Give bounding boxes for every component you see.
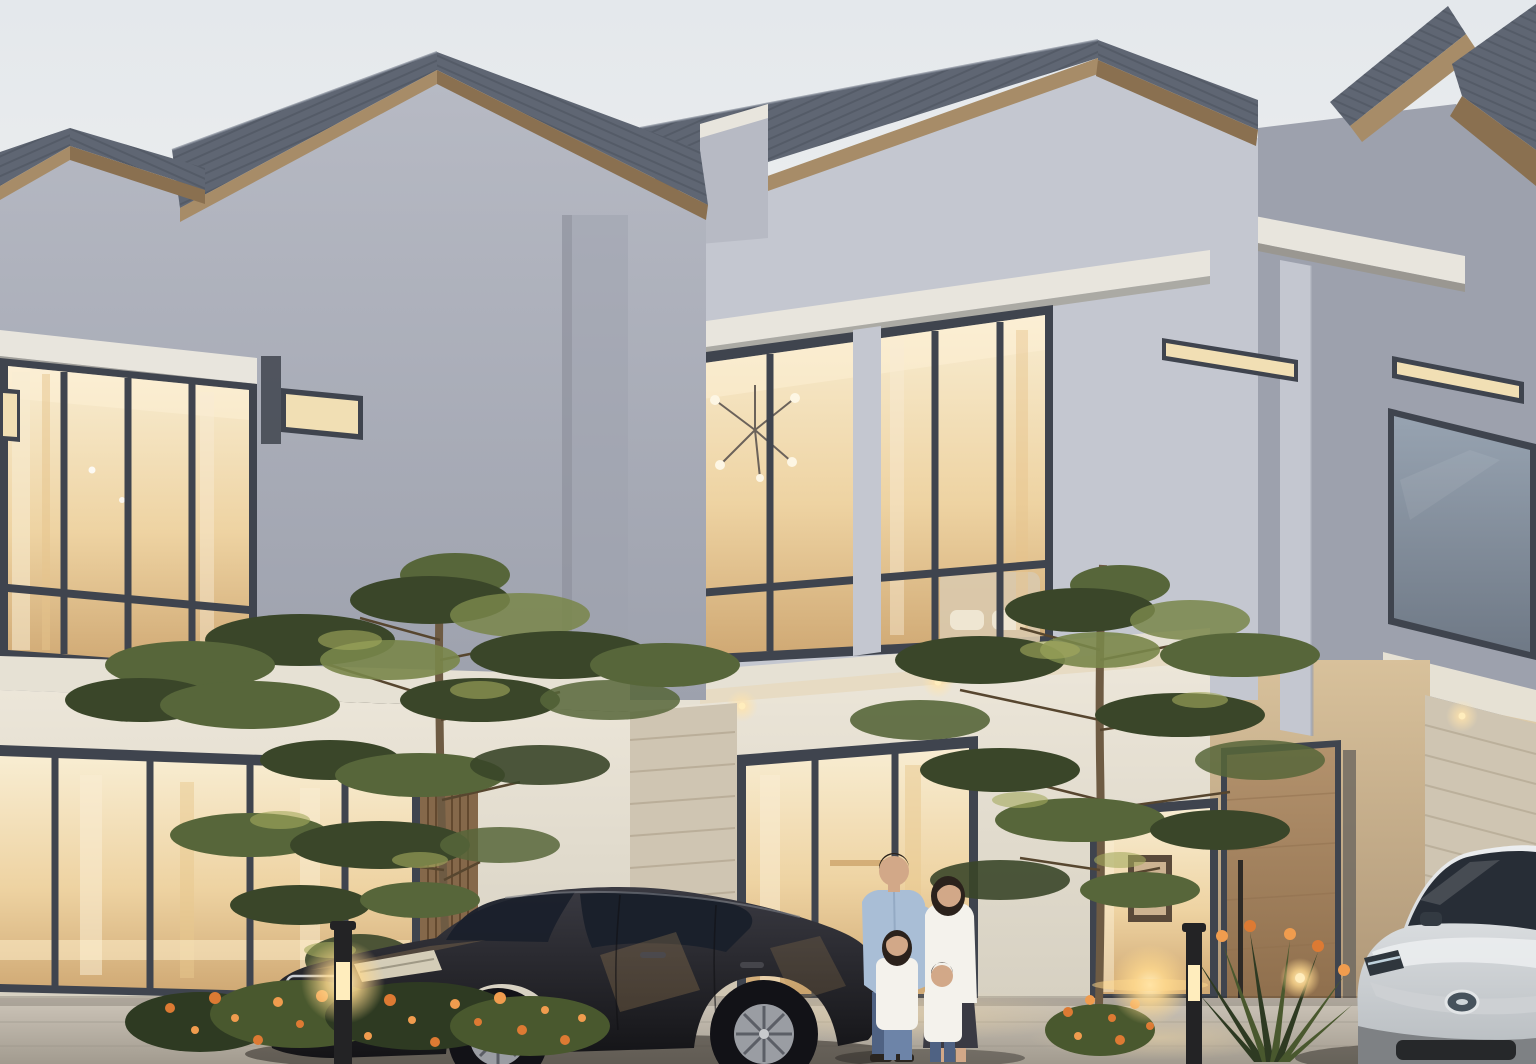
- window-glass: [1394, 416, 1530, 652]
- flower-dot: [191, 1026, 199, 1034]
- lamp-window: [1188, 965, 1200, 1001]
- foliage-highlight: [1020, 641, 1080, 659]
- chandelier-bulb: [790, 393, 800, 403]
- door-handle: [1238, 860, 1243, 1000]
- foliage-clump: [920, 748, 1080, 792]
- slit-glass: [3, 393, 17, 437]
- foliage-highlight: [250, 811, 310, 829]
- foliage-clump: [540, 680, 680, 720]
- flower-dot: [1063, 1007, 1073, 1017]
- flower-dot: [1074, 1032, 1082, 1040]
- foliage-clump: [1080, 872, 1200, 908]
- chandelier-bulb: [710, 395, 720, 405]
- foliage-clump: [470, 745, 610, 785]
- sedan-door-handle: [740, 962, 764, 968]
- left-slit-window: [281, 388, 363, 440]
- hedge-mass: [450, 996, 610, 1056]
- flower-dot: [1108, 1014, 1116, 1022]
- leg: [900, 1026, 912, 1060]
- foliage-clump: [160, 681, 340, 729]
- curtain-streak: [890, 340, 904, 635]
- bloom: [1244, 920, 1256, 932]
- flower-dot: [430, 1037, 440, 1047]
- architectural-rendering: [0, 0, 1536, 1064]
- torso-shirt: [876, 958, 918, 1030]
- lamp-window: [336, 962, 350, 1000]
- slit-glass: [286, 394, 358, 434]
- chandelier-bulb: [715, 460, 725, 470]
- foliage-highlight: [1094, 852, 1146, 868]
- curtain-streak: [200, 392, 214, 652]
- head: [931, 965, 953, 987]
- oval-emblem-bar: [1456, 999, 1468, 1005]
- foliage-clump: [1195, 740, 1325, 780]
- bloom: [1284, 928, 1296, 940]
- window-center-pier: [853, 326, 881, 656]
- flower-dot: [1115, 1035, 1125, 1045]
- foliage-clump: [450, 593, 590, 637]
- foliage-highlight: [992, 792, 1048, 808]
- bloom: [1338, 964, 1350, 976]
- flower-dot: [474, 1018, 482, 1026]
- curtain-streak: [42, 374, 50, 650]
- bloom: [1312, 940, 1324, 952]
- garden-light: [1280, 958, 1320, 998]
- flower-dot: [384, 994, 396, 1006]
- chandelier-bulb: [787, 457, 797, 467]
- timber-entry-door: [1221, 740, 1341, 1004]
- right-downlight: [1459, 713, 1466, 720]
- suv-mirror: [1420, 912, 1442, 926]
- flower-dot: [450, 999, 460, 1009]
- hub: [759, 1029, 769, 1039]
- right-upper-window-dark: [1388, 408, 1536, 660]
- leg: [884, 1026, 896, 1060]
- foliage-clump: [1160, 633, 1320, 677]
- bloom: [1216, 930, 1228, 942]
- middle-downlight: [739, 703, 746, 710]
- flower-dot: [209, 992, 221, 1004]
- door-panel: [1227, 747, 1335, 998]
- flower-dot: [1085, 995, 1095, 1005]
- flower-dot: [560, 1035, 570, 1045]
- lamp-cap: [330, 921, 356, 930]
- flower-dot: [408, 1016, 416, 1024]
- curtain-streak: [1016, 330, 1028, 630]
- interior-lamp-glint: [119, 497, 125, 503]
- foliage-clump: [360, 882, 480, 918]
- foliage-highlight: [450, 681, 510, 699]
- bumper-mesh: [1396, 1040, 1516, 1060]
- flower-dot: [273, 997, 283, 1007]
- foliage-clump: [850, 700, 990, 740]
- scene-canvas: [0, 0, 1536, 1064]
- flower-dot: [364, 1032, 372, 1040]
- flower-dot: [578, 1014, 586, 1022]
- torso-shirt: [924, 988, 962, 1042]
- chandelier-bulb: [756, 474, 764, 482]
- lamp-cap: [1182, 923, 1206, 932]
- leg: [956, 1046, 966, 1062]
- flower-dot: [517, 1025, 527, 1035]
- flower-dot: [494, 992, 506, 1004]
- flower-dot: [253, 1035, 263, 1045]
- foliage-clump: [1150, 810, 1290, 850]
- left-edge-slit-window: [0, 388, 20, 442]
- head: [879, 856, 909, 886]
- foliage-highlight: [392, 852, 448, 868]
- flower-dot: [541, 1006, 549, 1014]
- garden-light-core: [1295, 973, 1305, 983]
- foliage-highlight: [1172, 692, 1228, 708]
- foliage-highlight: [318, 630, 382, 650]
- foliage-clump: [230, 885, 370, 925]
- flower-dot: [296, 1020, 304, 1028]
- vertical-reveal-slot: [261, 356, 281, 444]
- flower-dot: [231, 1014, 239, 1022]
- foliage-clump: [440, 827, 560, 863]
- bed-pillow: [950, 610, 984, 630]
- flower-dot: [165, 1003, 175, 1013]
- sedan-door-handle: [640, 952, 666, 958]
- interior-lamp-glint: [89, 467, 96, 474]
